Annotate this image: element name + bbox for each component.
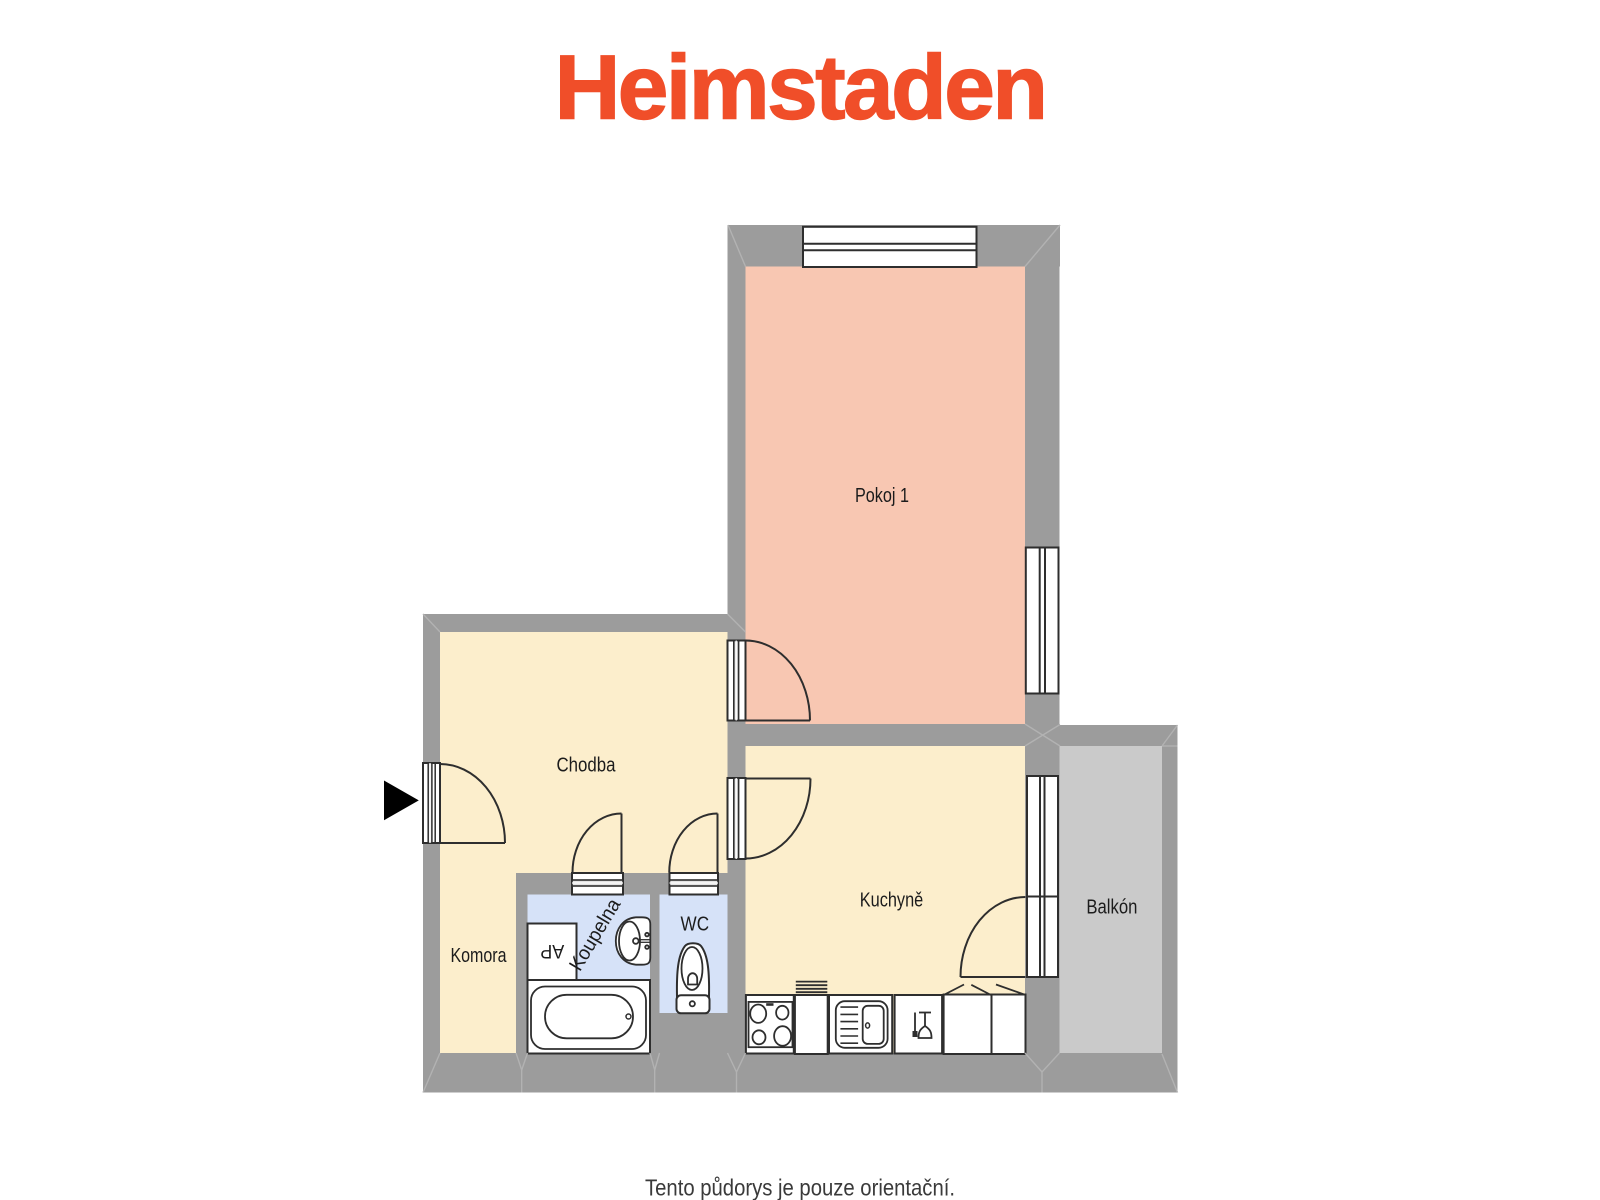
svg-text:Tento půdorys je pouze orienta: Tento půdorys je pouze orientační. <box>645 1175 955 1200</box>
svg-text:Balkón: Balkón <box>1086 897 1137 919</box>
svg-text:AP: AP <box>540 940 564 961</box>
svg-text:Pokoj 1: Pokoj 1 <box>855 485 909 507</box>
svg-text:Heimstaden: Heimstaden <box>555 38 1046 139</box>
svg-text:Kuchyně: Kuchyně <box>860 890 924 912</box>
svg-text:Komora: Komora <box>451 945 508 967</box>
svg-text:Chodba: Chodba <box>557 755 617 777</box>
svg-text:WC: WC <box>681 914 710 936</box>
